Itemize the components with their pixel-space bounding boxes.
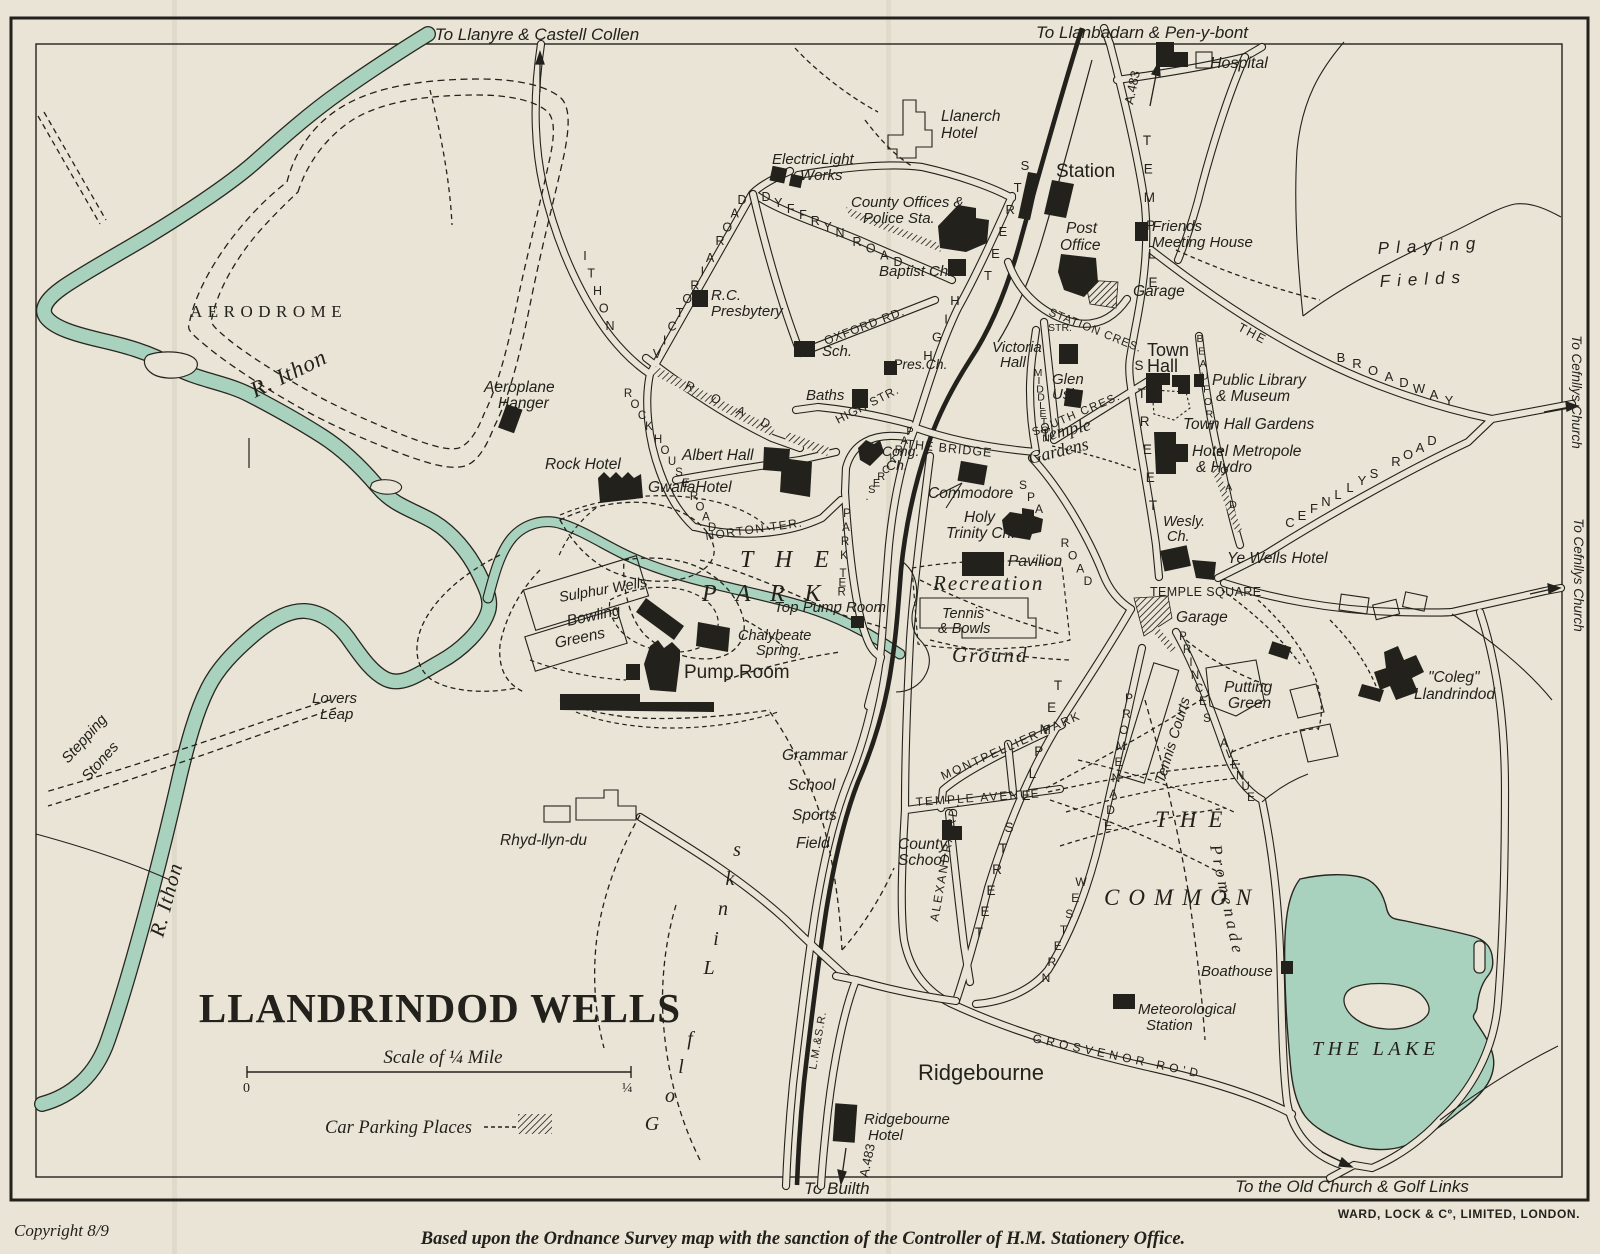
svg-text:Y: Y <box>824 220 833 234</box>
svg-text:C: C <box>1285 515 1294 530</box>
svg-text:Office: Office <box>1060 237 1101 254</box>
svg-text:S: S <box>1004 820 1013 835</box>
svg-text:TEMPLE SQUARE: TEMPLE SQUARE <box>1150 585 1261 599</box>
svg-text:R: R <box>1206 408 1214 420</box>
svg-text:F: F <box>799 208 807 222</box>
svg-text:T: T <box>1060 923 1068 937</box>
svg-text:S: S <box>1134 358 1143 373</box>
svg-text:Hotel Metropole: Hotel Metropole <box>1192 443 1302 460</box>
svg-text:O: O <box>1119 723 1128 737</box>
svg-text:D: D <box>1427 433 1436 448</box>
svg-text:Ridgebourne: Ridgebourne <box>864 1111 950 1128</box>
svg-text:D: D <box>737 193 746 207</box>
svg-text:W: W <box>1413 381 1426 396</box>
svg-text:Station: Station <box>1056 161 1115 182</box>
svg-text:L: L <box>1029 766 1037 781</box>
svg-text:Usk: Usk <box>1052 386 1079 403</box>
svg-text:M: M <box>1040 722 1051 737</box>
svg-text:¼: ¼ <box>622 1081 633 1096</box>
svg-text:Commodore: Commodore <box>928 485 1014 502</box>
svg-text:R: R <box>1352 356 1361 371</box>
svg-text:O: O <box>1368 363 1378 378</box>
svg-text:Pres.Ch.: Pres.Ch. <box>893 356 947 372</box>
svg-text:Y: Y <box>1445 393 1454 408</box>
svg-text:B: B <box>1196 333 1203 345</box>
svg-text:To Llanyre & Castell Collen: To Llanyre & Castell Collen <box>435 25 639 44</box>
svg-text:K: K <box>889 453 897 465</box>
svg-text:Hotel: Hotel <box>941 125 978 142</box>
svg-text:Garage: Garage <box>1176 609 1228 626</box>
svg-text:STR.: STR. <box>1048 322 1072 334</box>
svg-text:Y: Y <box>1358 473 1367 488</box>
svg-text:I: I <box>701 265 704 279</box>
svg-text:Ridgebourne: Ridgebourne <box>918 1060 1044 1085</box>
svg-text:T: T <box>1208 421 1215 433</box>
svg-text:.: . <box>839 596 842 608</box>
svg-text:F: F <box>1310 501 1318 516</box>
svg-text:T: T <box>1054 678 1062 693</box>
svg-text:R: R <box>715 234 724 248</box>
svg-text:P: P <box>1034 744 1043 759</box>
svg-text:Hanger: Hanger <box>498 395 550 412</box>
svg-text:To the Old Church & Golf Links: To the Old Church & Golf Links <box>1235 1177 1469 1196</box>
svg-text:N: N <box>605 319 614 333</box>
svg-text:Recreation: Recreation <box>932 571 1044 595</box>
svg-text:n: n <box>718 898 728 920</box>
svg-text:N: N <box>1112 771 1121 785</box>
svg-text:R: R <box>852 235 861 249</box>
svg-text:T: T <box>999 841 1007 856</box>
svg-text:A: A <box>1225 482 1232 494</box>
svg-text:Llandrindod: Llandrindod <box>1414 686 1496 703</box>
svg-text:Ground: Ground <box>952 643 1029 667</box>
svg-text:E: E <box>1247 792 1255 804</box>
svg-text:Car Parking Places: Car Parking Places <box>325 1118 472 1138</box>
svg-text:I: I <box>1189 657 1192 669</box>
svg-text:l: l <box>678 1056 684 1078</box>
svg-text:G: G <box>645 1113 660 1135</box>
svg-text:T: T <box>975 925 983 940</box>
svg-text:0: 0 <box>243 1081 250 1096</box>
svg-text:Scale of ¼ Mile: Scale of ¼ Mile <box>383 1047 502 1068</box>
svg-text:To Llanbadarn & Pen-y-bont: To Llanbadarn & Pen-y-bont <box>1036 23 1249 42</box>
svg-text:Garage: Garage <box>1133 283 1185 300</box>
svg-text:R: R <box>992 862 1002 877</box>
svg-text:"Coleg": "Coleg" <box>1428 669 1481 686</box>
svg-text:Spring.: Spring. <box>756 643 802 659</box>
svg-text:E: E <box>1114 755 1122 769</box>
svg-text:D: D <box>1084 574 1093 588</box>
svg-text:M: M <box>1144 190 1155 205</box>
svg-text:C: C <box>668 320 677 334</box>
svg-text:s: s <box>733 839 741 861</box>
svg-text:O: O <box>722 220 732 234</box>
svg-text:P: P <box>1125 691 1133 705</box>
svg-text:T: T <box>587 267 595 281</box>
svg-text:P: P <box>843 508 851 520</box>
svg-text:S: S <box>1021 158 1030 173</box>
svg-text:Hospital: Hospital <box>1210 55 1268 72</box>
svg-text:R: R <box>1006 202 1015 217</box>
svg-text:R: R <box>1047 955 1056 969</box>
svg-text:D: D <box>1106 803 1115 817</box>
svg-text:T H E: T H E <box>740 547 837 573</box>
svg-text:Top Pump Room: Top Pump Room <box>774 599 886 616</box>
svg-text:R: R <box>841 536 849 548</box>
svg-text:E: E <box>991 246 1000 261</box>
svg-text:S: S <box>1065 907 1073 921</box>
svg-text:Ye Wells Hotel: Ye Wells Hotel <box>1227 550 1328 567</box>
svg-text:LLANDRINDOD WELLS: LLANDRINDOD WELLS <box>199 985 681 1031</box>
svg-text:Pump Room: Pump Room <box>684 662 790 683</box>
svg-text:A: A <box>1430 387 1439 402</box>
svg-text:U: U <box>1201 371 1209 383</box>
svg-text:Chalybeate: Chalybeate <box>738 628 811 644</box>
svg-text:O: O <box>1220 464 1228 476</box>
svg-text:Aeroplane: Aeroplane <box>483 379 555 396</box>
svg-text:F: F <box>1203 383 1209 395</box>
svg-text:I: I <box>663 333 666 347</box>
svg-text:E: E <box>986 883 995 898</box>
svg-text:S: S <box>1019 478 1027 492</box>
svg-text:Llanerch: Llanerch <box>941 108 1000 125</box>
svg-text:Lovers: Lovers <box>312 690 358 707</box>
svg-text:Police Sta.: Police Sta. <box>863 210 935 227</box>
svg-text:To Builth: To Builth <box>804 1179 870 1198</box>
svg-text:P: P <box>1179 631 1187 643</box>
svg-text:A: A <box>842 522 850 534</box>
svg-text:Leap: Leap <box>320 706 353 723</box>
svg-text:D: D <box>761 190 770 204</box>
svg-text:E: E <box>1144 161 1153 176</box>
svg-text:K: K <box>840 550 848 562</box>
svg-text:Rock Hotel: Rock Hotel <box>545 456 621 473</box>
svg-text:E: E <box>980 904 989 919</box>
svg-text:D: D <box>1399 375 1408 390</box>
svg-text:R: R <box>1122 707 1131 721</box>
svg-text:L: L <box>1148 247 1156 262</box>
svg-text:T: T <box>676 306 684 320</box>
svg-text:C: C <box>1195 683 1203 695</box>
svg-text:L: L <box>1346 480 1353 495</box>
svg-text:O: O <box>682 292 692 306</box>
svg-text:E: E <box>1198 346 1205 358</box>
svg-text:E: E <box>1146 470 1155 485</box>
svg-text:A: A <box>1109 787 1117 801</box>
svg-text:Baths: Baths <box>806 387 845 404</box>
svg-text:Wesly.: Wesly. <box>1163 514 1205 530</box>
svg-text:To Cefnllys Church: To Cefnllys Church <box>1571 518 1586 632</box>
svg-text:Public Library: Public Library <box>1212 372 1307 389</box>
svg-text:A: A <box>880 248 889 262</box>
svg-text:A: A <box>1200 358 1207 370</box>
svg-text:Hall: Hall <box>1147 356 1178 376</box>
svg-text:THE LAKE: THE LAKE <box>1312 1038 1440 1060</box>
svg-text:& Museum: & Museum <box>1216 388 1290 405</box>
svg-text:School: School <box>788 777 836 794</box>
svg-text:T: T <box>1014 180 1022 195</box>
svg-text:E: E <box>682 478 690 490</box>
svg-text:Town Hall Gardens: Town Hall Gardens <box>1183 416 1314 433</box>
svg-text:T: T <box>1143 133 1151 148</box>
svg-text:Pavilion: Pavilion <box>1008 553 1062 570</box>
svg-text:L: L <box>1334 487 1341 502</box>
svg-text:.: . <box>865 491 868 503</box>
svg-text:Post: Post <box>1066 220 1098 237</box>
svg-text:A: A <box>1385 369 1394 384</box>
svg-text:R.C.: R.C. <box>711 287 741 304</box>
svg-text:i: i <box>713 928 719 950</box>
svg-text:O: O <box>1204 396 1212 408</box>
svg-text:A: A <box>1416 440 1425 455</box>
svg-text:E: E <box>1021 788 1030 803</box>
svg-text:R: R <box>690 278 699 292</box>
svg-text:R: R <box>1183 644 1191 656</box>
svg-text:Boathouse: Boathouse <box>1201 963 1273 980</box>
svg-text:R: R <box>1140 414 1150 429</box>
svg-text:Presbytery: Presbytery <box>711 303 784 320</box>
svg-text:Rhyd-llyn-du: Rhyd-llyn-du <box>500 832 587 849</box>
svg-text:S: S <box>1203 713 1211 725</box>
svg-text:Holy: Holy <box>964 509 996 526</box>
svg-text:E: E <box>1047 700 1056 715</box>
svg-text:O: O <box>599 302 609 316</box>
svg-text:R: R <box>1391 454 1400 469</box>
svg-text:P: P <box>1027 490 1035 504</box>
svg-text:AERODROME: AERODROME <box>190 302 347 321</box>
svg-text:A: A <box>731 207 740 221</box>
svg-text:E: E <box>1143 442 1152 457</box>
svg-text:County Offices &: County Offices & <box>851 194 964 211</box>
svg-text:B: B <box>1337 350 1346 365</box>
svg-text:S: S <box>1370 466 1379 481</box>
svg-text:THE: THE <box>1155 807 1234 832</box>
svg-text:Based upon the Ordnance Survey: Based upon the Ordnance Survey map with … <box>420 1229 1185 1249</box>
svg-text:Sports: Sports <box>792 807 837 824</box>
svg-text:D: D <box>708 522 716 534</box>
svg-text:I: I <box>944 311 948 326</box>
svg-text:Meeting House: Meeting House <box>1152 234 1253 251</box>
svg-text:N: N <box>1042 433 1050 445</box>
svg-text:F: F <box>787 202 795 216</box>
svg-text:A: A <box>1035 502 1043 516</box>
svg-text:D: D <box>1229 499 1237 511</box>
svg-text:County: County <box>898 836 948 853</box>
svg-text:H: H <box>950 293 959 308</box>
svg-text:H: H <box>593 284 602 298</box>
svg-text:E: E <box>1071 891 1079 905</box>
svg-text:Ch.: Ch. <box>1167 529 1190 545</box>
svg-text:N: N <box>1042 971 1051 985</box>
svg-text:To Cefnllys Church: To Cefnllys Church <box>1569 335 1584 449</box>
svg-text:O: O <box>1403 447 1413 462</box>
svg-text:E: E <box>1054 939 1062 953</box>
svg-text:E: E <box>1104 819 1112 833</box>
svg-text:Putting: Putting <box>1224 679 1273 696</box>
svg-text:R: R <box>1216 447 1224 459</box>
svg-text:Station: Station <box>1146 1017 1193 1034</box>
svg-text:Tennis: Tennis <box>942 606 984 622</box>
svg-text:Y: Y <box>774 196 783 210</box>
svg-text:Trinity Ch.: Trinity Ch. <box>946 525 1015 542</box>
svg-text:M: M <box>1116 739 1126 753</box>
svg-text:L: L <box>702 957 714 979</box>
svg-text:R: R <box>811 214 820 228</box>
svg-text:WARD, LOCK & Cº, LIMITED, LOND: WARD, LOCK & Cº, LIMITED, LONDON. <box>1338 1207 1580 1221</box>
svg-text:E: E <box>1148 275 1157 290</box>
svg-text:Meteorological: Meteorological <box>1138 1001 1236 1018</box>
svg-text:Works: Works <box>800 167 843 184</box>
svg-text:Copyright 8/9: Copyright 8/9 <box>14 1221 109 1240</box>
svg-text:Green: Green <box>1228 695 1271 712</box>
svg-text:O: O <box>866 242 876 256</box>
svg-text:ElectricLight: ElectricLight <box>772 151 855 168</box>
svg-text:School: School <box>898 852 946 869</box>
svg-text:I: I <box>583 249 586 263</box>
svg-text:o: o <box>665 1085 675 1107</box>
svg-text:N: N <box>835 226 844 240</box>
svg-text:T: T <box>1138 386 1146 401</box>
svg-text:Field: Field <box>796 835 831 852</box>
svg-text:Grammar: Grammar <box>782 747 848 764</box>
svg-text:E: E <box>998 224 1007 239</box>
svg-text:Albert Hall: Albert Hall <box>681 447 754 464</box>
svg-text:E: E <box>1298 508 1307 523</box>
svg-text:Hall: Hall <box>1000 354 1027 371</box>
svg-text:D: D <box>893 255 902 269</box>
svg-text:Baptist Ch.: Baptist Ch. <box>879 263 952 280</box>
svg-text:k: k <box>726 868 736 890</box>
svg-text:P: P <box>1146 218 1155 233</box>
svg-text:Hotel: Hotel <box>868 1127 904 1144</box>
svg-text:H: H <box>923 348 932 363</box>
svg-text:K: K <box>645 421 653 433</box>
svg-text:S: S <box>868 484 875 496</box>
svg-text:N: N <box>1191 670 1199 682</box>
svg-text:N: N <box>1321 494 1330 509</box>
svg-text:W: W <box>1075 875 1087 889</box>
svg-text:& Bowls: & Bowls <box>938 621 990 637</box>
svg-text:A: A <box>706 251 715 265</box>
svg-text:G: G <box>932 330 942 345</box>
svg-text:Friends: Friends <box>1152 218 1203 235</box>
svg-text:T: T <box>1149 498 1157 513</box>
svg-text:T: T <box>984 268 992 283</box>
svg-text:V: V <box>653 347 662 361</box>
